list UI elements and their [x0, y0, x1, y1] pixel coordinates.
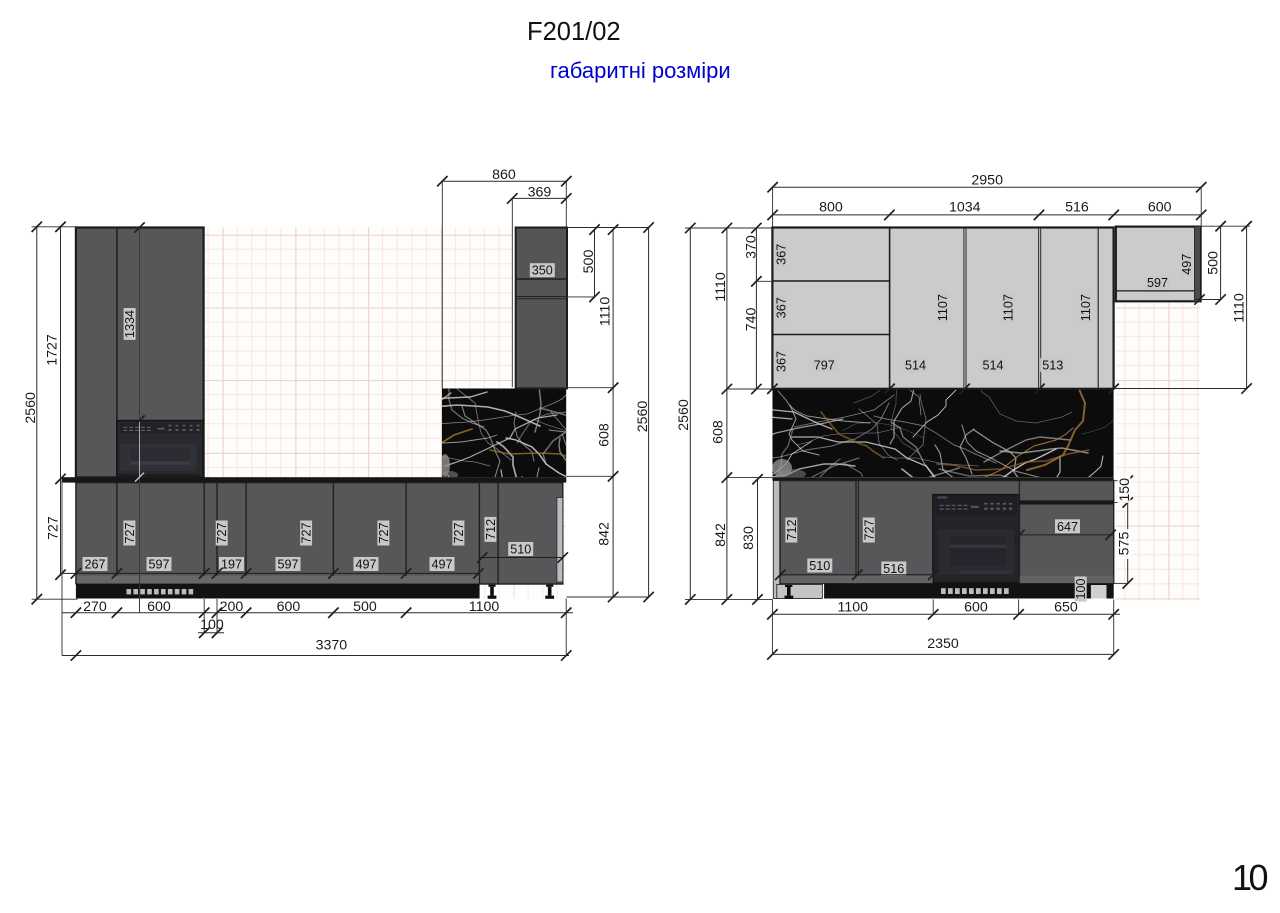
- svg-text:497: 497: [1180, 254, 1194, 275]
- svg-text:497: 497: [431, 558, 452, 572]
- svg-text:100: 100: [200, 617, 224, 633]
- svg-text:727: 727: [862, 519, 876, 540]
- svg-text:367: 367: [775, 351, 789, 372]
- svg-text:3370: 3370: [316, 637, 348, 653]
- svg-text:575: 575: [1117, 532, 1133, 556]
- svg-text:367: 367: [775, 297, 789, 318]
- svg-text:1100: 1100: [838, 599, 869, 615]
- svg-text:514: 514: [982, 359, 1003, 373]
- svg-text:510: 510: [809, 559, 830, 573]
- svg-text:370: 370: [743, 235, 759, 259]
- svg-text:727: 727: [300, 522, 314, 543]
- svg-text:727: 727: [377, 522, 391, 543]
- svg-text:1727: 1727: [45, 334, 61, 366]
- svg-text:860: 860: [492, 167, 516, 183]
- svg-text:1110: 1110: [713, 272, 729, 302]
- svg-text:1034: 1034: [949, 200, 981, 216]
- svg-text:1107: 1107: [1002, 294, 1016, 321]
- svg-text:2950: 2950: [971, 173, 1003, 189]
- svg-text:350: 350: [532, 264, 553, 278]
- svg-text:830: 830: [741, 526, 757, 550]
- svg-text:516: 516: [1065, 200, 1089, 216]
- svg-text:2560: 2560: [23, 392, 39, 424]
- svg-text:1100: 1100: [469, 599, 500, 615]
- svg-text:500: 500: [353, 599, 377, 615]
- svg-text:100: 100: [1074, 578, 1088, 599]
- svg-text:200: 200: [220, 599, 244, 615]
- svg-text:597: 597: [1147, 276, 1168, 290]
- svg-text:500: 500: [1205, 251, 1221, 275]
- svg-text:647: 647: [1057, 520, 1078, 534]
- svg-text:2560: 2560: [676, 399, 692, 431]
- svg-text:500: 500: [581, 250, 597, 274]
- svg-text:10: 10: [1232, 857, 1268, 898]
- svg-text:600: 600: [964, 599, 988, 615]
- svg-text:1334: 1334: [123, 310, 137, 338]
- svg-text:2350: 2350: [927, 636, 959, 652]
- svg-text:2560: 2560: [635, 401, 651, 433]
- svg-text:800: 800: [819, 200, 843, 216]
- svg-text:740: 740: [743, 307, 759, 331]
- svg-text:267: 267: [84, 558, 105, 572]
- svg-text:150: 150: [1117, 478, 1133, 502]
- svg-text:510: 510: [510, 543, 531, 557]
- svg-text:608: 608: [597, 423, 613, 447]
- svg-text:712: 712: [785, 519, 799, 540]
- svg-text:369: 369: [528, 184, 552, 200]
- svg-text:367: 367: [775, 244, 789, 265]
- svg-text:842: 842: [713, 523, 729, 547]
- svg-text:F201/02: F201/02: [527, 18, 621, 46]
- svg-text:1107: 1107: [936, 294, 950, 321]
- svg-text:1110: 1110: [597, 297, 613, 327]
- svg-text:650: 650: [1054, 599, 1078, 615]
- svg-text:608: 608: [711, 420, 727, 444]
- svg-text:197: 197: [221, 558, 242, 572]
- svg-text:513: 513: [1042, 359, 1063, 373]
- svg-text:597: 597: [277, 558, 298, 572]
- svg-text:727: 727: [46, 516, 62, 540]
- svg-text:712: 712: [484, 519, 498, 540]
- svg-text:1110: 1110: [1232, 293, 1248, 323]
- svg-text:727: 727: [215, 522, 229, 543]
- svg-text:597: 597: [148, 558, 169, 572]
- svg-text:797: 797: [814, 359, 835, 373]
- svg-text:727: 727: [452, 522, 466, 543]
- svg-text:1107: 1107: [1079, 294, 1093, 321]
- svg-text:727: 727: [123, 522, 137, 543]
- svg-text:600: 600: [1148, 200, 1172, 216]
- svg-text:842: 842: [597, 522, 613, 546]
- svg-text:600: 600: [277, 599, 301, 615]
- svg-text:600: 600: [147, 599, 171, 615]
- svg-text:270: 270: [83, 599, 107, 615]
- svg-text:497: 497: [355, 558, 376, 572]
- svg-text:516: 516: [883, 562, 904, 576]
- svg-text:габаритні розміри: габаритні розміри: [550, 58, 731, 83]
- svg-text:514: 514: [905, 359, 926, 373]
